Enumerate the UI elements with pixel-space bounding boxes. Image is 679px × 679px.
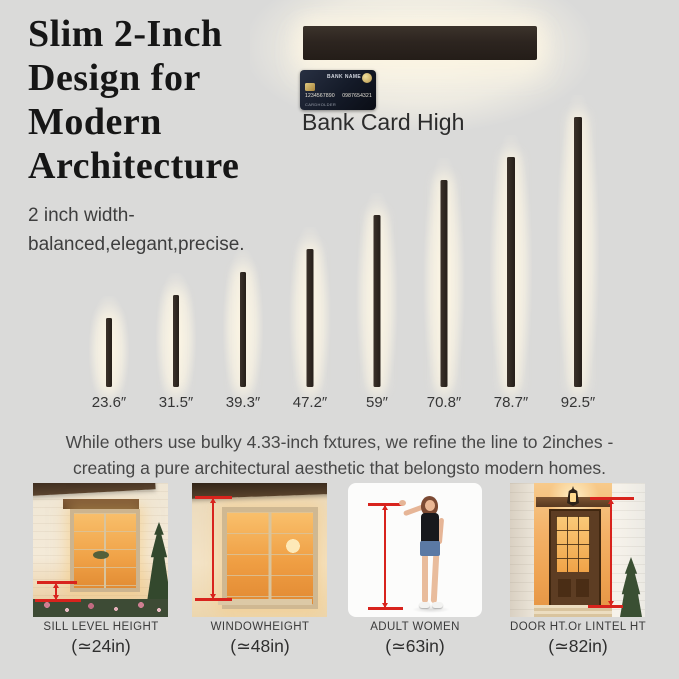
gallery-caption: DOOR HT.Or LINTEL HT (≃82in) [490, 621, 666, 657]
woman-hand [399, 500, 406, 506]
gallery-caption: ADULT WOMEN (≃63in) [327, 621, 503, 657]
gallery-panel-sill-height [33, 483, 168, 617]
woman-shorts [420, 541, 440, 556]
fixture-length-label: 70.8″ [427, 394, 462, 411]
page-title: Slim 2-Inch Design for Modern Architectu… [28, 12, 239, 188]
gallery-caption: SILL LEVEL HEIGHT (≃24in) [13, 621, 189, 657]
caption-title: SILL LEVEL HEIGHT [13, 621, 189, 633]
wall-light-fixture [240, 272, 246, 387]
card-number-right: 0987654321 [342, 93, 372, 99]
subtitle: 2 inch width- balanced,elegant,precise. [28, 201, 245, 259]
window-lintel [63, 499, 139, 509]
wall-light-fixture [374, 215, 381, 387]
door-panel [576, 579, 589, 597]
measure-arrow [610, 500, 612, 605]
card-chip-icon [305, 83, 315, 91]
title-line: Slim 2-Inch [28, 12, 239, 56]
woman-leg [422, 554, 428, 603]
measure-arrow [384, 506, 386, 607]
tagline-line: creating a pure architectural aesthetic … [0, 455, 679, 481]
caption-title: DOOR HT.Or LINTEL HT [490, 621, 666, 633]
caption-value: (≃63in) [327, 636, 503, 657]
figure-shadow [412, 606, 450, 613]
window-plant [93, 551, 109, 559]
subtitle-line: 2 inch width- [28, 201, 245, 230]
door-panel [558, 579, 571, 597]
card-holder-label: CARDHOLDER [305, 102, 336, 107]
fixture-length-label: 59″ [366, 394, 388, 411]
caption-value: (≃48in) [172, 636, 348, 657]
fixture-length-label: 47.2″ [293, 394, 328, 411]
title-line: Design for [28, 56, 239, 100]
wall-light-fixture [106, 318, 112, 387]
woman-face [425, 500, 435, 511]
caption-title: ADULT WOMEN [327, 621, 503, 633]
caption-title: WINDOWHEIGHT [172, 621, 348, 633]
fixture-length-label: 92.5″ [561, 394, 596, 411]
product-infographic: Slim 2-Inch Design for Modern Architectu… [0, 0, 679, 679]
measure-arrow [212, 499, 214, 598]
tagline-line: While others use bulky 4.33-inch fxtures… [0, 429, 679, 455]
woman-top [421, 513, 439, 543]
subtitle-line: balanced,elegant,precise. [28, 230, 245, 259]
lit-window [222, 507, 318, 609]
gallery-panel-adult-woman [348, 483, 482, 617]
gallery-panel-door-height [510, 483, 645, 617]
woman-leg [431, 554, 440, 603]
front-door [549, 509, 601, 609]
bank-card: BANK NAME 1234567890 0987654321 CARDHOLD… [300, 70, 376, 110]
caption-value: (≃24in) [13, 636, 189, 657]
wall-light-fixture [307, 249, 314, 387]
wall-light-fixture [441, 180, 448, 387]
fixture-length-label: 31.5″ [159, 394, 194, 411]
fixture-length-label: 78.7″ [494, 394, 529, 411]
roof-eave [33, 483, 156, 496]
tagline: While others use bulky 4.33-inch fxtures… [0, 429, 679, 481]
conifer-tree [147, 522, 168, 602]
bank-card-high-label: Bank Card High [302, 109, 464, 136]
card-number-left: 1234567890 [305, 93, 335, 99]
wall-light-fixture [574, 117, 582, 387]
gallery-caption: WINDOWHEIGHT (≃48in) [172, 621, 348, 657]
woman-shoe [419, 602, 430, 608]
measure-arrow [55, 584, 57, 599]
fixture-length-label: 23.6″ [92, 394, 127, 411]
bank-logo-icon [362, 73, 372, 83]
card-number: 1234567890 0987654321 [305, 93, 372, 99]
wall-light-fixture [507, 157, 515, 387]
caption-value: (≃82in) [490, 636, 666, 657]
title-line: Modern [28, 100, 239, 144]
conifer-tree [620, 557, 642, 617]
lit-window [70, 509, 140, 592]
horizontal-wall-light-fixture [303, 26, 537, 60]
fixture-length-label: 39.3″ [226, 394, 261, 411]
lantern-light [570, 493, 576, 502]
gallery-panel-window-height [192, 483, 327, 617]
door-glass-panes [556, 516, 590, 572]
wall-light-fixture [173, 295, 179, 387]
measure-line [588, 605, 623, 608]
bank-card-name: BANK NAME [327, 74, 361, 80]
woman-shoe [432, 602, 443, 608]
window-sill [218, 599, 312, 605]
title-line: Architecture [28, 144, 239, 188]
